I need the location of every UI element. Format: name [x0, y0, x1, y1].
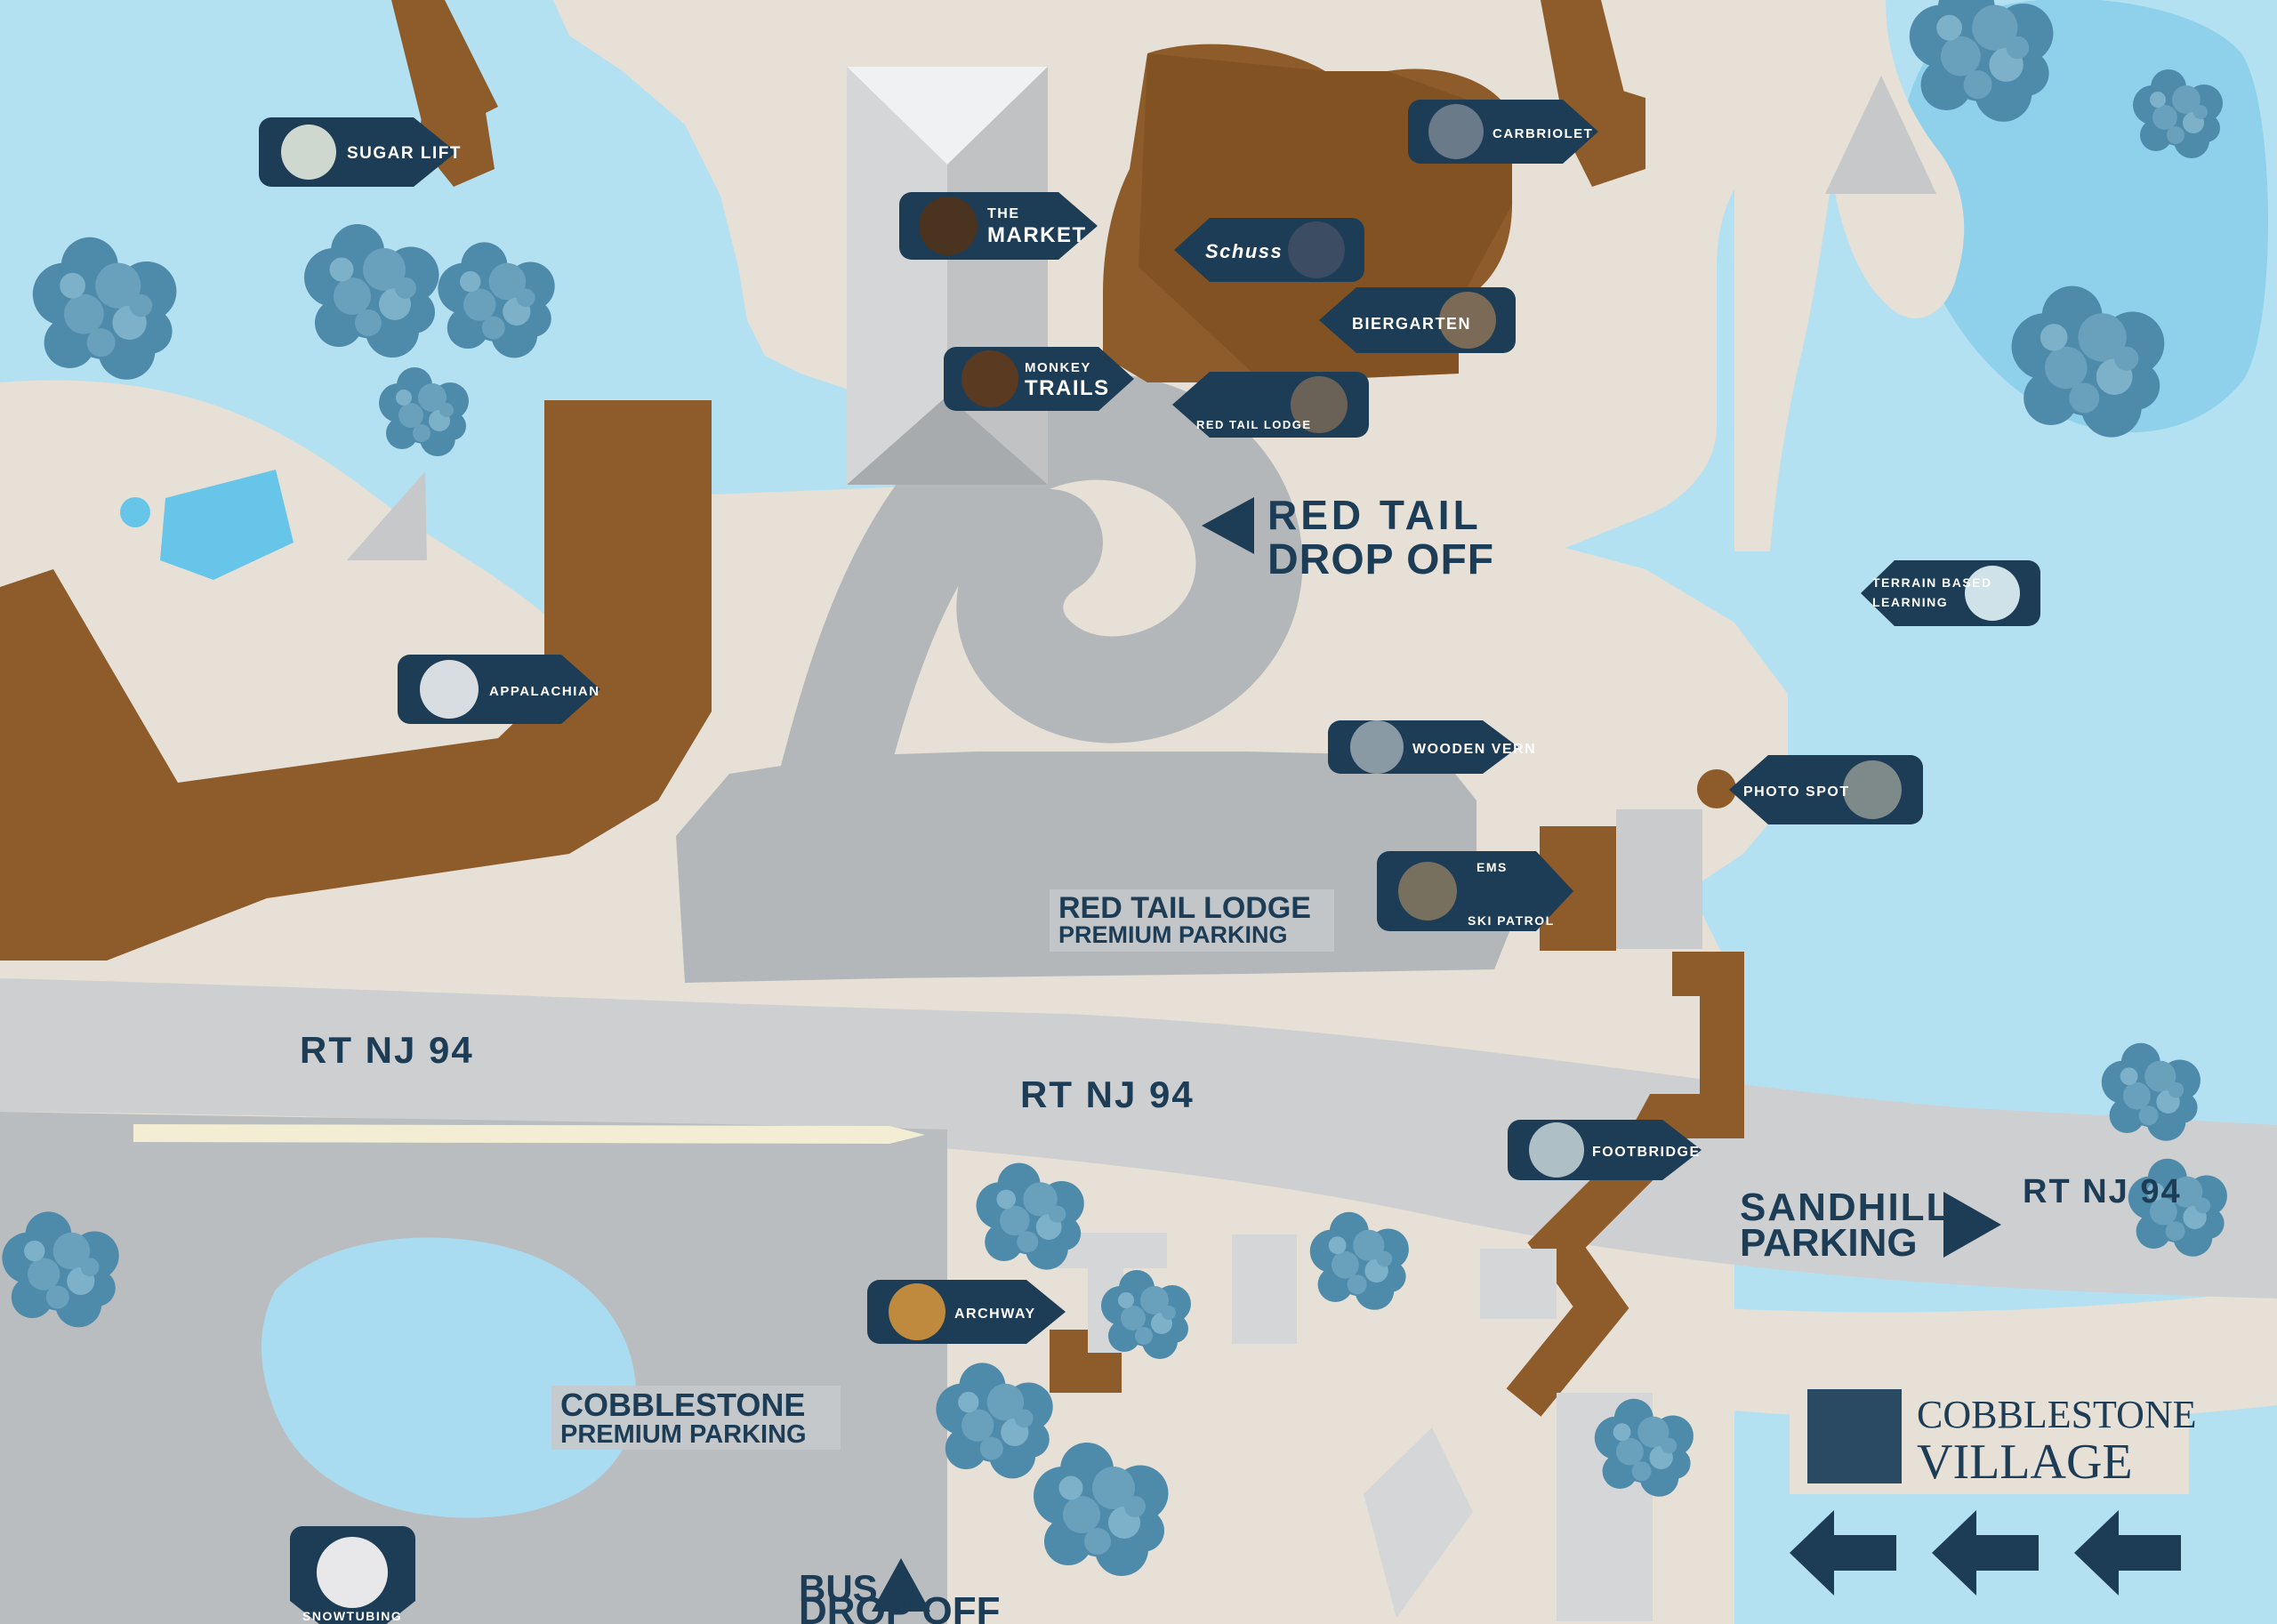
- svg-text:Schuss: Schuss: [1205, 240, 1283, 262]
- svg-text:PARKING: PARKING: [1740, 1221, 1918, 1265]
- svg-text:PHOTO SPOT: PHOTO SPOT: [1743, 784, 1850, 800]
- svg-text:CARBRIOLET: CARBRIOLET: [1493, 126, 1593, 141]
- svg-text:SNOWTUBING: SNOWTUBING: [302, 1609, 402, 1623]
- svg-text:RT NJ 94: RT NJ 94: [1020, 1073, 1195, 1115]
- svg-text:COBBLESTONE: COBBLESTONE: [560, 1387, 805, 1423]
- svg-text:TERRAIN BASED: TERRAIN BASED: [1872, 575, 1992, 590]
- svg-text:EMS: EMS: [1476, 860, 1508, 874]
- svg-text:MONKEY: MONKEY: [1025, 360, 1091, 375]
- svg-text:TRAILS: TRAILS: [1025, 376, 1110, 400]
- svg-text:DROP OFF: DROP OFF: [799, 1589, 1001, 1624]
- svg-text:LEARNING: LEARNING: [1872, 595, 1948, 609]
- svg-text:COBBLESTONE: COBBLESTONE: [1917, 1393, 2197, 1436]
- svg-text:FOOTBRIDGE: FOOTBRIDGE: [1592, 1145, 1701, 1160]
- svg-text:PREMIUM PARKING: PREMIUM PARKING: [560, 1420, 807, 1449]
- svg-text:RT NJ 94: RT NJ 94: [300, 1029, 474, 1071]
- svg-text:WOODEN VERN: WOODEN VERN: [1412, 742, 1536, 757]
- svg-text:RED TAIL: RED TAIL: [1267, 492, 1482, 538]
- svg-text:APPALACHIAN: APPALACHIAN: [489, 684, 600, 699]
- svg-text:ARCHWAY: ARCHWAY: [954, 1306, 1036, 1322]
- svg-text:RT NJ 94: RT NJ 94: [2023, 1173, 2182, 1210]
- svg-text:DROP OFF: DROP OFF: [1267, 536, 1494, 583]
- svg-text:RED TAIL LODGE: RED TAIL LODGE: [1058, 891, 1311, 925]
- svg-text:BIERGARTEN: BIERGARTEN: [1352, 315, 1471, 333]
- svg-text:THE: THE: [987, 206, 1020, 221]
- svg-text:VILLAGE: VILLAGE: [1917, 1435, 2133, 1490]
- svg-text:RED TAIL LODGE: RED TAIL LODGE: [1196, 418, 1312, 431]
- svg-text:MARKET: MARKET: [987, 223, 1087, 247]
- svg-text:PREMIUM PARKING: PREMIUM PARKING: [1058, 921, 1288, 948]
- svg-text:SUGAR LIFT: SUGAR LIFT: [347, 144, 462, 163]
- svg-text:SKI PATROL: SKI PATROL: [1468, 913, 1555, 928]
